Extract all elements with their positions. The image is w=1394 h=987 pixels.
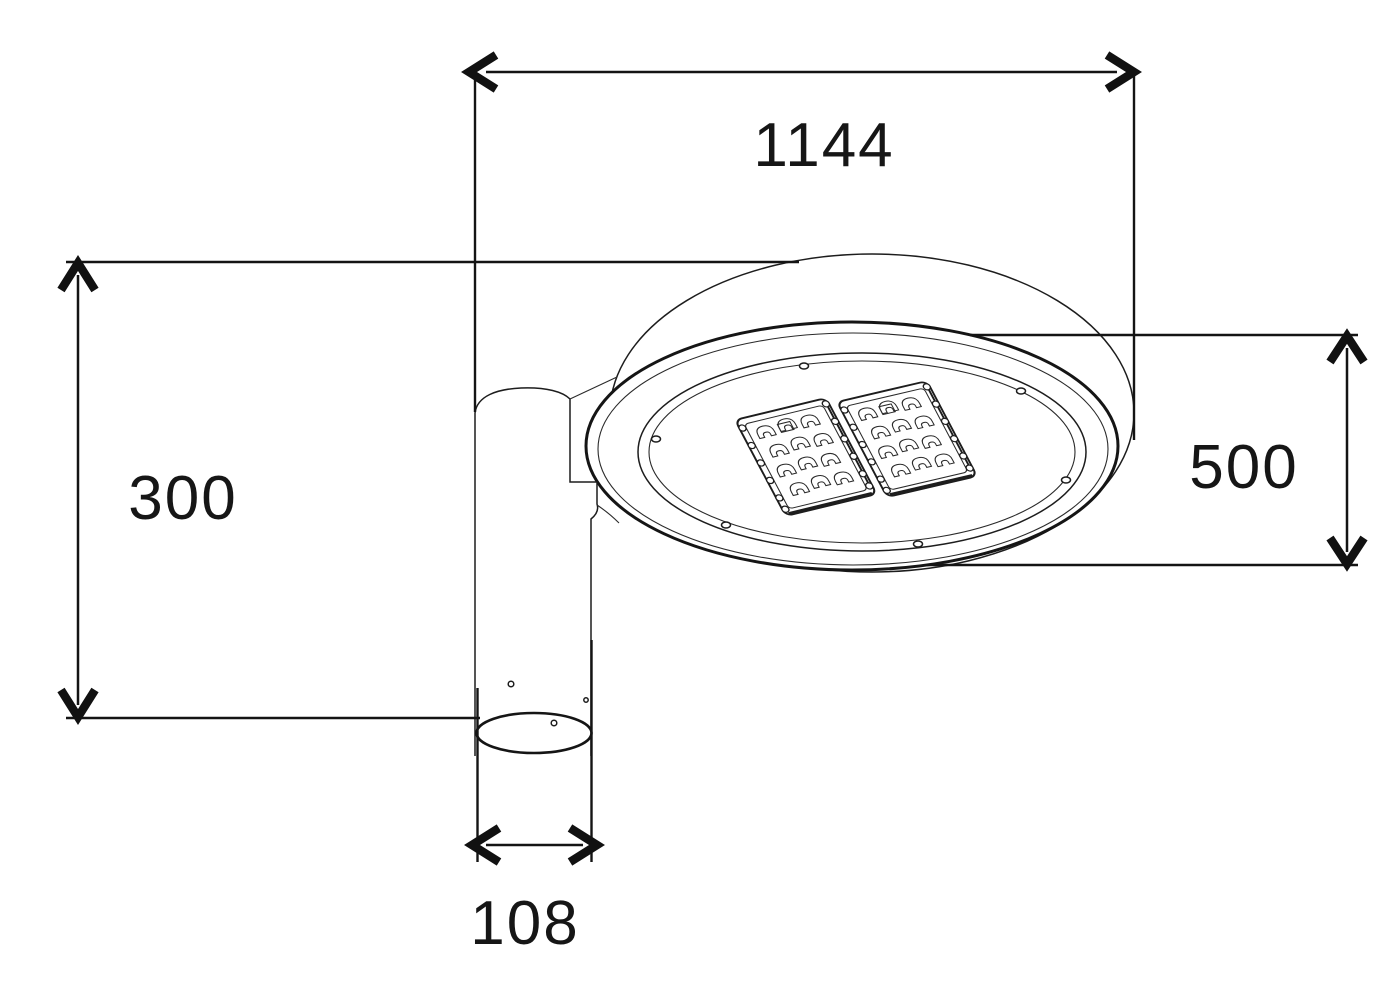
luminaire-head (586, 254, 1134, 572)
dimension-label-pole-diameter: 108 (470, 889, 579, 958)
dimension-label-head-diameter: 500 (1189, 433, 1298, 502)
head-face-ring-outer (638, 353, 1086, 551)
luminaire-dimension-drawing: 1144 300 500 108 (0, 0, 1394, 987)
dimension-label-top-width: 1144 (753, 111, 894, 180)
pole-bottom-opening (477, 713, 592, 753)
dimension-label-left-height: 300 (128, 464, 237, 533)
bracket-bottom-edge (597, 505, 619, 523)
technical-drawing-page: 1144 300 500 108 (0, 0, 1394, 987)
pole-body-fill (475, 388, 598, 764)
